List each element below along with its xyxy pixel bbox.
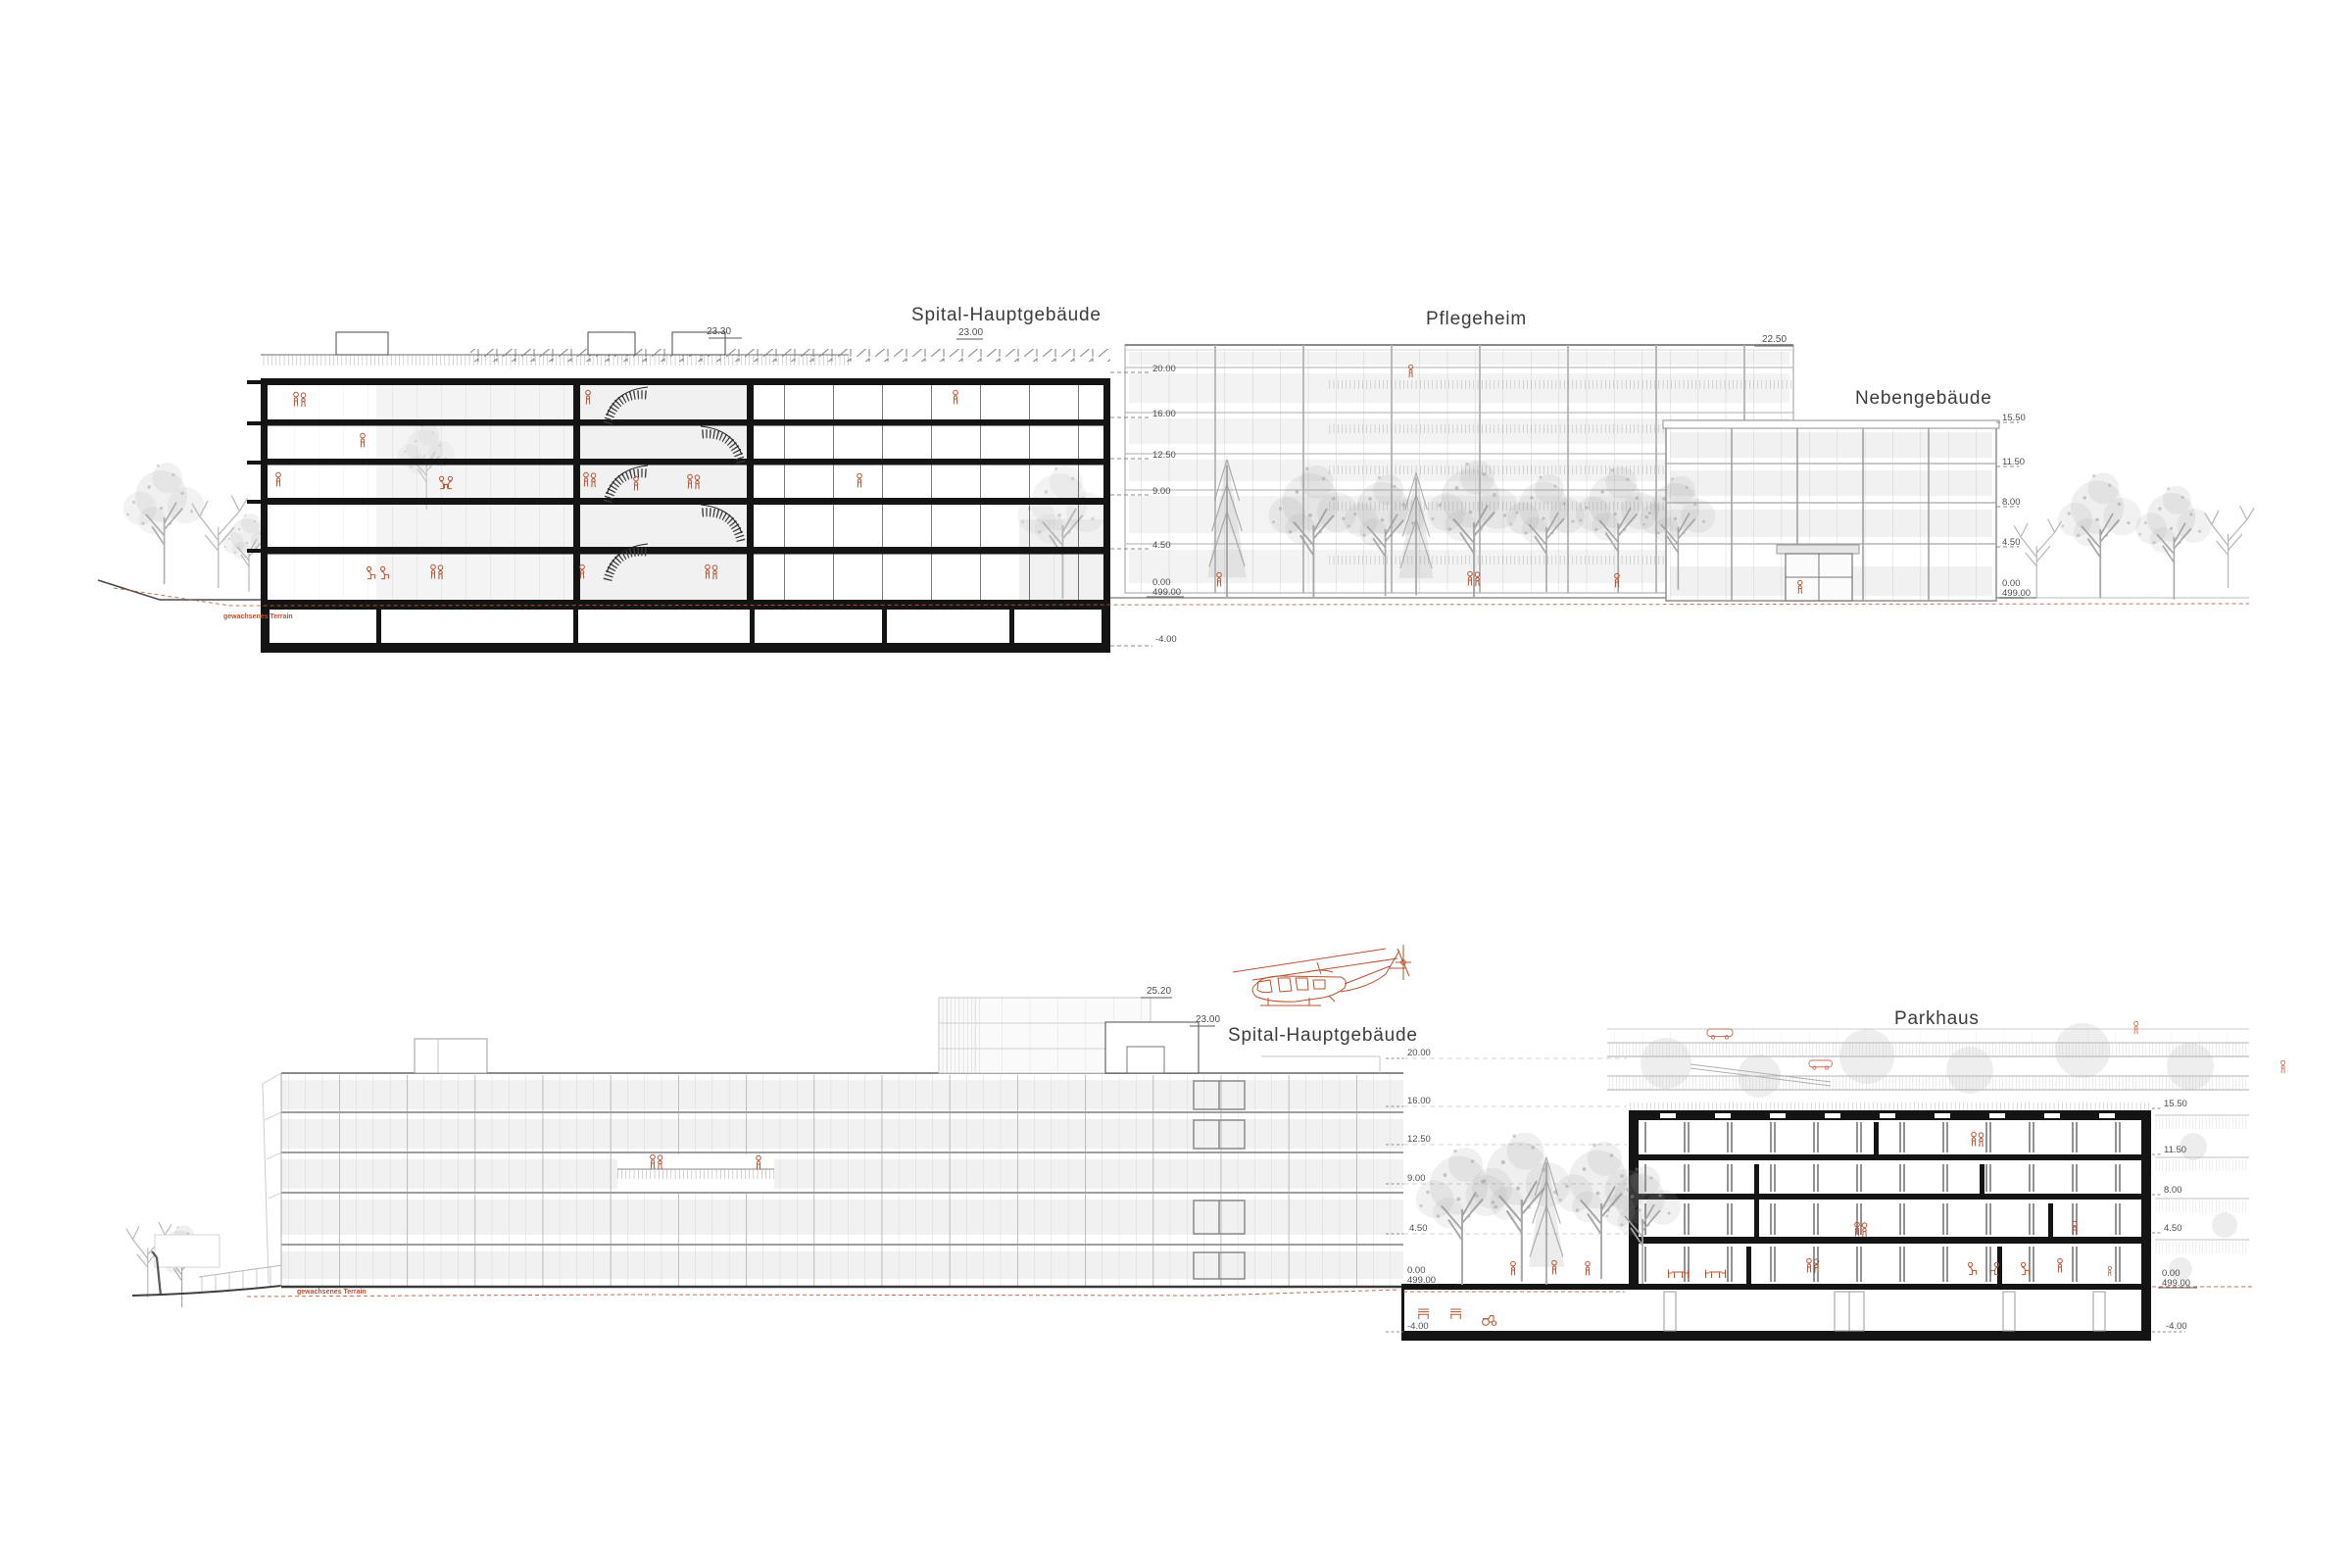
dim-label: 23.00 (958, 327, 983, 338)
building-title: Spital-Hauptgebäude (911, 305, 1102, 325)
dim-label: 23.00 (1196, 1014, 1220, 1025)
level-label: 9.00 (1407, 1173, 1426, 1184)
window-mullions (757, 384, 1103, 600)
level-label: 4.50 (2164, 1223, 2182, 1234)
terrain-label: gewachsenes Terrain (297, 1289, 367, 1296)
level-label: 11.50 (2164, 1145, 2186, 1155)
level-label: 11.50 (2002, 457, 2025, 467)
level-label: 8.00 (2164, 1185, 2182, 1196)
level-label: 15.50 (2002, 413, 2026, 423)
entrance-door (1786, 554, 1852, 601)
building-title: Nebengebäude (1855, 388, 1992, 409)
level-label: 4.50 (2002, 537, 2021, 548)
level-label: 9.00 (1152, 486, 1171, 497)
entrance-canopy (1777, 545, 1859, 554)
level-label: -4.00 (2166, 1321, 2187, 1332)
dim-label: 25.20 (1147, 986, 1171, 997)
level-label: 499.00 (1407, 1275, 1436, 1286)
level-label: 4.50 (1409, 1223, 1428, 1234)
terrain-label: gewachsenes Terrain (223, 613, 293, 620)
top-spital-section (247, 332, 1110, 653)
roof-parapet (588, 332, 635, 355)
level-label: 12.50 (1407, 1134, 1431, 1145)
building-title: Spital-Hauptgebäude (1228, 1025, 1418, 1046)
elevation-sections-drawing: gewachsenes Terrain 23.30 23.00 22.50 20… (0, 0, 2352, 1568)
level-label: -4.00 (1407, 1321, 1429, 1332)
level-label: 20.00 (1407, 1048, 1431, 1058)
level-label: 499.00 (2162, 1278, 2190, 1289)
level-label: 4.50 (1152, 540, 1171, 551)
level-label: 20.00 (1152, 364, 1176, 374)
level-label: 16.00 (1407, 1096, 1431, 1106)
dim-label: 22.50 (1762, 334, 1787, 345)
level-label: 499.00 (1152, 587, 1181, 598)
parkhaus-skylights (1660, 1113, 2115, 1118)
level-label: 499.00 (2002, 588, 2031, 599)
roof-pergola (470, 349, 1110, 362)
level-label: -4.00 (1155, 634, 1177, 645)
architectural-sheet: gewachsenes Terrain 23.30 23.00 22.50 20… (0, 0, 2352, 1568)
level-label: 16.00 (1152, 409, 1176, 419)
dim-label: 23.30 (707, 326, 731, 337)
level-label: 12.50 (1152, 450, 1176, 461)
elevation-balcony (617, 1154, 774, 1192)
roof-parapet (336, 332, 388, 355)
level-label: 15.50 (2164, 1099, 2187, 1109)
level-label: 8.00 (2002, 497, 2021, 508)
parkhaus-roof-deck (1629, 1102, 2151, 1110)
elevation-piers (281, 1075, 1403, 1287)
building-title: Pflegeheim (1426, 309, 1527, 329)
building-title: Parkhaus (1894, 1008, 1980, 1029)
